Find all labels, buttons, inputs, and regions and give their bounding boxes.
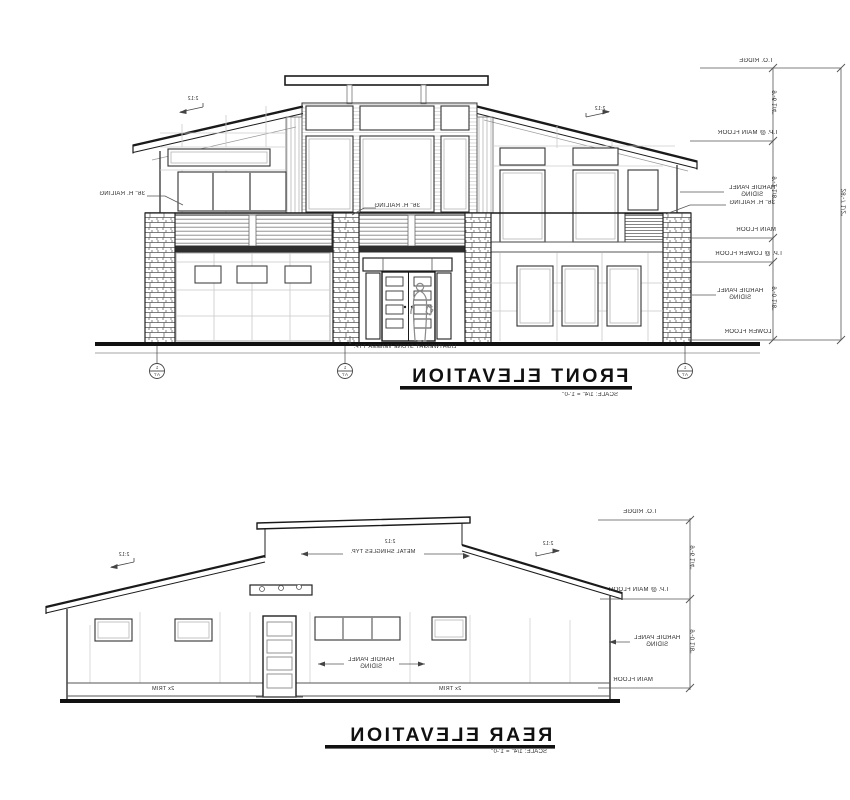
- rear-trim-left-note: 2x TRIM: [138, 686, 188, 692]
- front-elevation-title: FRONT ELEVATION: [389, 365, 649, 388]
- front-level-plate-lower-label: T.P. @ LOWER FLOOR: [704, 251, 794, 258]
- front-lower-right-wall: [483, 253, 663, 341]
- rear-level-main-label: MAIN FLOOR: [598, 677, 668, 684]
- rear-shingles-note: METAL SHINGLES TYP.: [328, 549, 438, 555]
- front-dim-ridge-to-plate: 9'-6 1/4": [772, 78, 779, 128]
- rear-hardie-center-note: HARDIE PANEL SIDING: [341, 657, 401, 671]
- rear-level-ridge-label: T.O. RIDGE: [600, 509, 680, 516]
- rear-trim-right-note: 2x TRIM: [425, 686, 475, 692]
- front-dim-overall: 28'-7 1/2": [841, 178, 848, 228]
- rear-level-plate-main-label: T.P. @ MAIN FLOOR: [594, 587, 684, 594]
- rear-roof-left: [46, 556, 265, 614]
- front-slope-right-flag: 2:12: [585, 107, 615, 113]
- entry-door: [360, 258, 455, 343]
- grid-bubble-1-bottom: A7: [147, 372, 167, 377]
- grid-bubble-3-top: 1: [675, 365, 695, 370]
- rear-scale-note: SCALE: 1/4" = 1'-0": [464, 749, 574, 756]
- front-clerestory-roof: [285, 76, 488, 104]
- grid-bubble-2-top: 1: [335, 365, 355, 370]
- front-scale-note: SCALE: 1/4" = 1'-0": [535, 392, 645, 399]
- front-stone-veneer-note: LIGHTWEIGHT STONE VENEER TYP.: [345, 344, 465, 350]
- elevation-sheet: T.O. RIDGE T.P. @ MAIN FLOOR MAIN FLOOR …: [0, 0, 850, 800]
- front-dim-plate-to-main: 9'-1 1/8": [772, 164, 779, 214]
- grid-bubble-2-bottom: A7: [335, 372, 355, 377]
- rear-slope-right-flag: 2:12: [533, 542, 563, 548]
- rear-hardie-right-note: HARDIE PANEL SIDING: [627, 635, 687, 649]
- louver-panel: [625, 214, 663, 242]
- grid-bubble-1-top: 1: [147, 365, 167, 370]
- front-railing-left-note: 36" H. RAILING: [87, 191, 157, 198]
- front-railing-center-note: 36" H. RAILING: [362, 203, 432, 210]
- front-level-lower-label: LOWER FLOOR: [713, 329, 783, 336]
- front-level-ridge-label: T.O. RIDGE: [716, 58, 796, 65]
- front-clerestory-windows: [306, 106, 469, 212]
- front-dim-plate-to-lower: 9'-0 1/8": [772, 274, 779, 324]
- rear-shingles-slope-note: 2:12: [375, 540, 405, 546]
- front-hardie-lower-note: HARDIE PANEL SIDING: [710, 288, 770, 302]
- rear-door-canopy: [250, 585, 312, 596]
- rear-dimension-lines: [598, 516, 694, 692]
- front-slope-left-flag: 2:12: [178, 97, 208, 103]
- front-balcony-railings: [170, 215, 483, 253]
- rear-dim-plate-to-main: 9'-0 1/8": [690, 617, 697, 667]
- front-level-plate-main-label: T.P. @ MAIN FLOOR: [703, 130, 793, 137]
- front-level-main-label: MAIN FLOOR: [721, 227, 791, 234]
- front-right-upper-wall: [483, 126, 677, 252]
- rear-elevation-title: REAR ELEVATION: [320, 724, 580, 747]
- rear-door: [256, 616, 303, 697]
- rear-dim-ridge-to-plate: 9'-6 1/4": [690, 533, 697, 583]
- elevation-drawing-canvas: [0, 0, 850, 800]
- rear-slope-left-flag: 2:12: [109, 553, 139, 559]
- front-garage-panel-wall: [176, 253, 330, 341]
- grid-bubble-3-bottom: A7: [675, 372, 695, 377]
